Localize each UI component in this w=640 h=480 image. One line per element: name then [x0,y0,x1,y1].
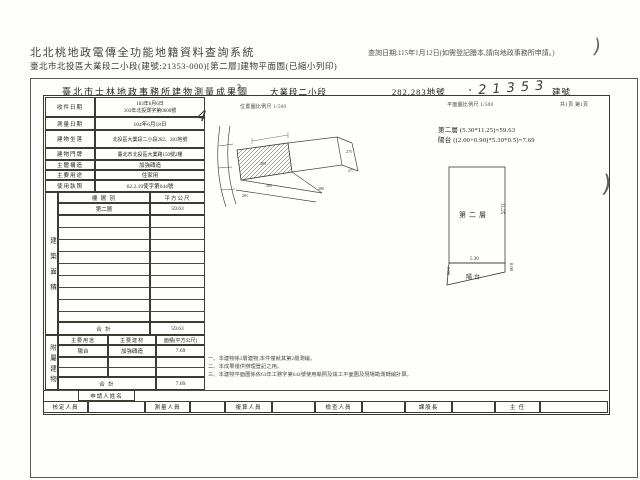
floor-plan [447,167,505,285]
balcony-outline [447,263,505,285]
scanned-document-viewer: TORO ESTATE 不動產 北北桃地政電傳全功能地籍資料查詢系統 查詢日期:… [0,0,640,480]
dim-width: 5.30 [470,257,479,262]
lot-number: 282 [266,183,272,188]
balcony-dim-left: 2.00 [446,267,451,276]
balcony-label: 陽台 [466,273,482,281]
location-sketch [218,126,358,207]
road-ticks [218,144,235,190]
lot-number: 275 [346,149,352,154]
road-line-2 [218,126,226,207]
dim-height: 11.25 [499,203,504,215]
adjacent-lot-1 [288,137,342,172]
lot-number: 281 [242,193,248,198]
lot-number: 283 [260,161,266,166]
floor-label: 第二層 [459,210,489,219]
floor-plan-labels: 第二層 11.25 5.30 陽台 2.00 0.90 [446,203,514,281]
drawing-overlay: 283 282 281 275 277 280 第二層 11.25 5.30 陽… [0,0,640,480]
lot-number: 280 [318,186,324,191]
balcony-dim-right: 0.90 [509,263,514,272]
lower-lot-lines [236,180,322,202]
dimension-tick-line [252,132,288,144]
lot-number: 277 [348,168,354,173]
road-line-1 [228,126,236,204]
